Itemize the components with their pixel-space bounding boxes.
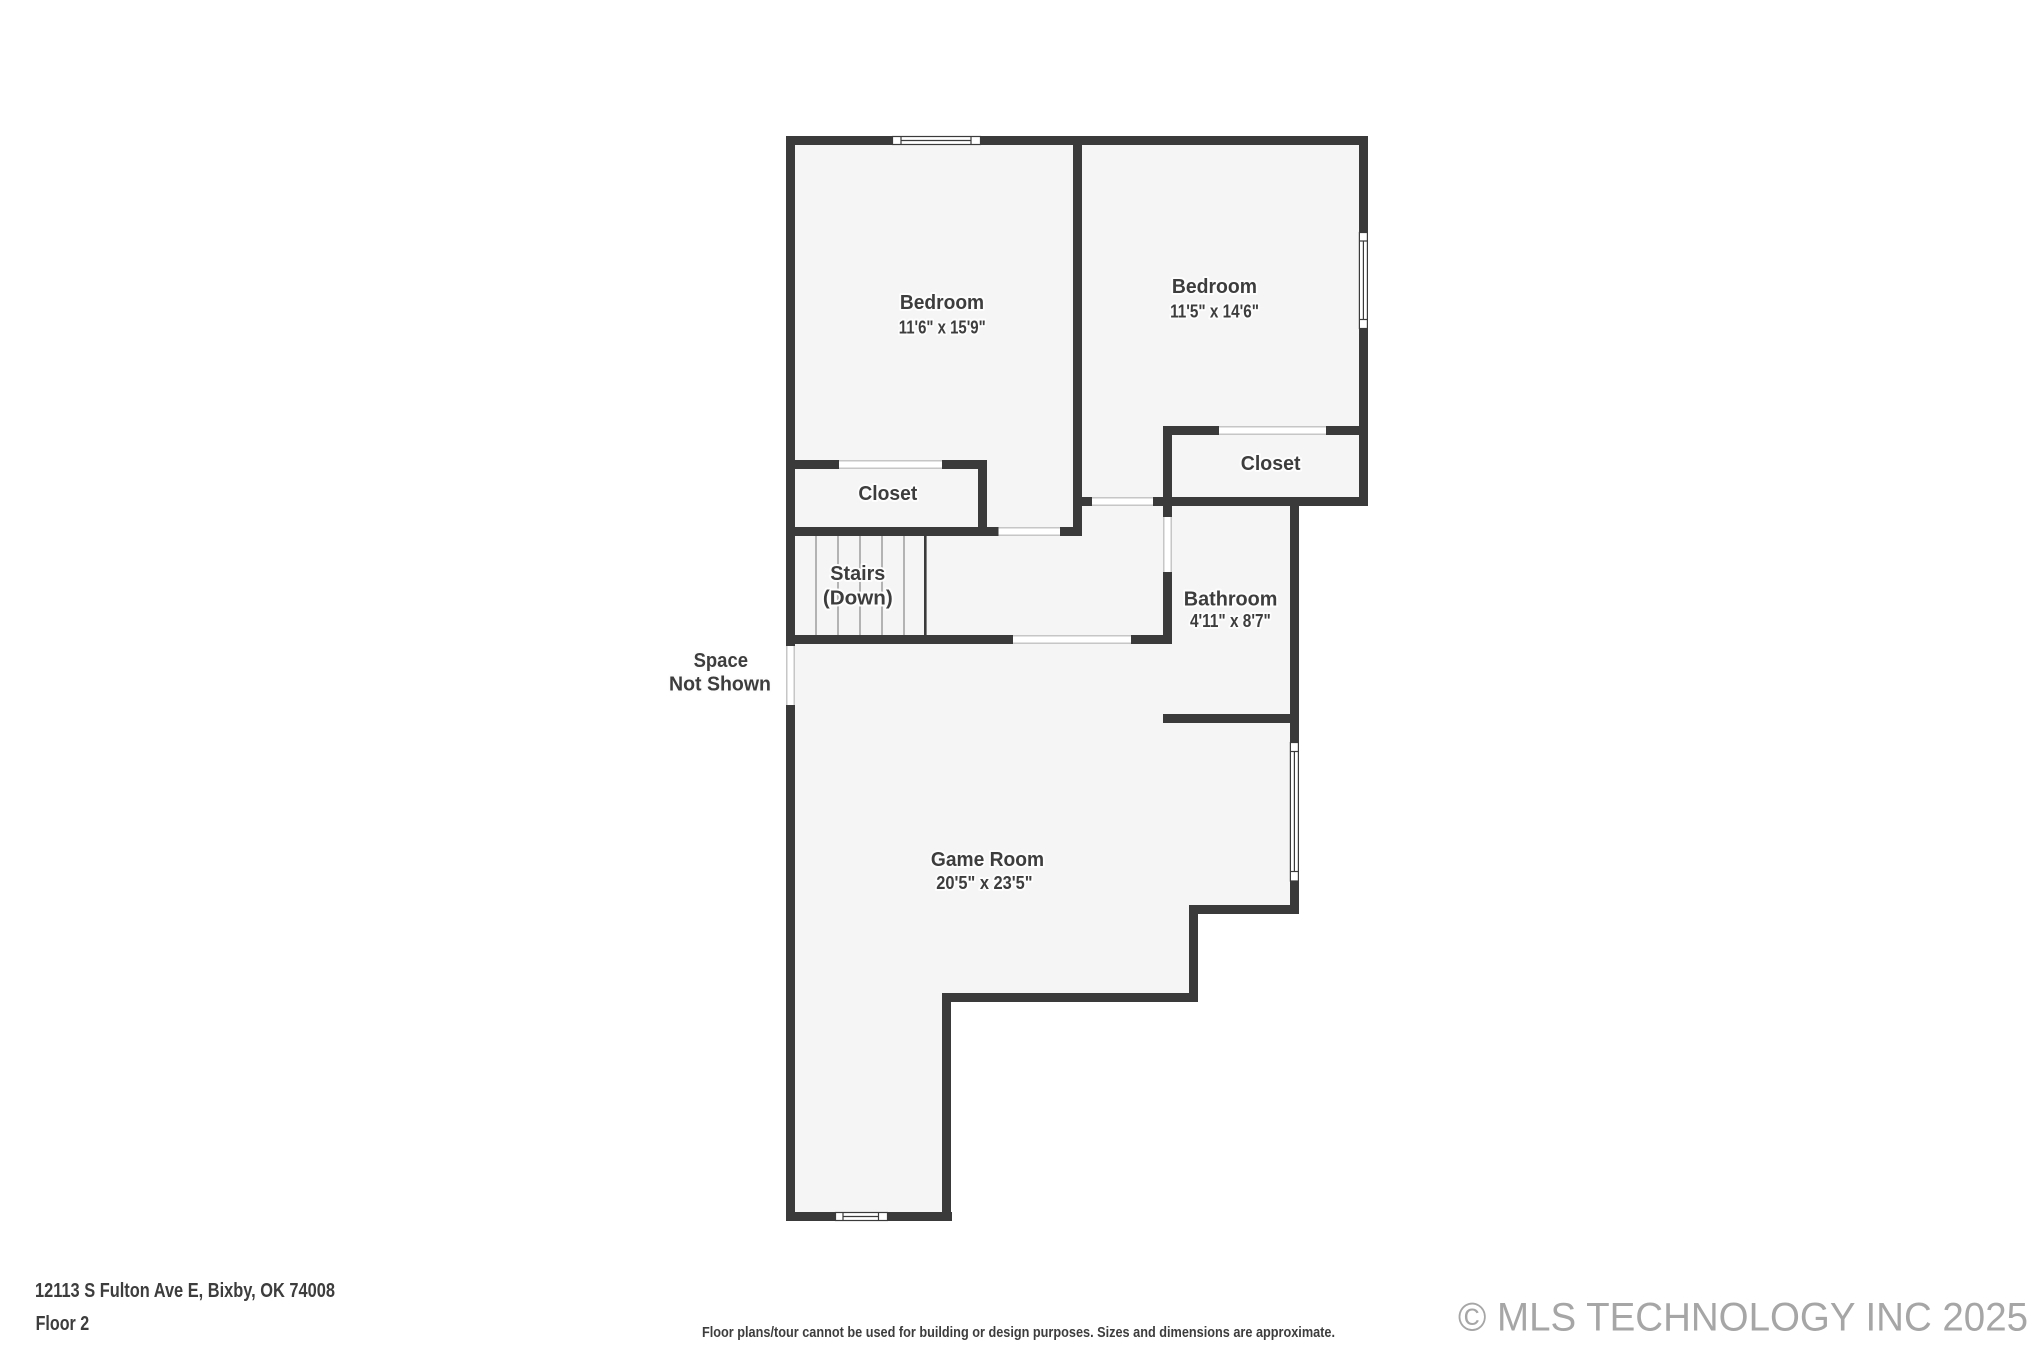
svg-text:20'5" x 23'5": 20'5" x 23'5" <box>936 873 1032 893</box>
svg-text:Bathroom: Bathroom <box>1184 589 1278 611</box>
svg-text:4'11" x 8'7": 4'11" x 8'7" <box>1190 611 1271 631</box>
svg-text:Floor 2: Floor 2 <box>36 1313 90 1335</box>
svg-text:Space: Space <box>694 650 748 672</box>
svg-text:(Down): (Down) <box>823 588 893 610</box>
svg-text:Bedroom: Bedroom <box>900 292 984 314</box>
svg-text:Not Shown: Not Shown <box>669 674 771 696</box>
svg-text:Game Room: Game Room <box>931 849 1044 871</box>
svg-text:© MLS TECHNOLOGY INC 2025: © MLS TECHNOLOGY INC 2025 <box>1458 1296 2028 1340</box>
svg-text:Closet: Closet <box>858 483 917 505</box>
svg-text:Closet: Closet <box>1241 453 1301 475</box>
svg-text:11'6" x 15'9": 11'6" x 15'9" <box>899 318 986 338</box>
svg-text:Stairs: Stairs <box>830 563 885 585</box>
svg-text:11'5" x 14'6": 11'5" x 14'6" <box>1170 302 1259 322</box>
svg-text:Bedroom: Bedroom <box>1172 276 1257 298</box>
svg-text:Floor plans/tour cannot be use: Floor plans/tour cannot be used for buil… <box>702 1325 1335 1341</box>
svg-text:12113 S Fulton Ave E, Bixby, O: 12113 S Fulton Ave E, Bixby, OK 74008 <box>35 1280 335 1302</box>
